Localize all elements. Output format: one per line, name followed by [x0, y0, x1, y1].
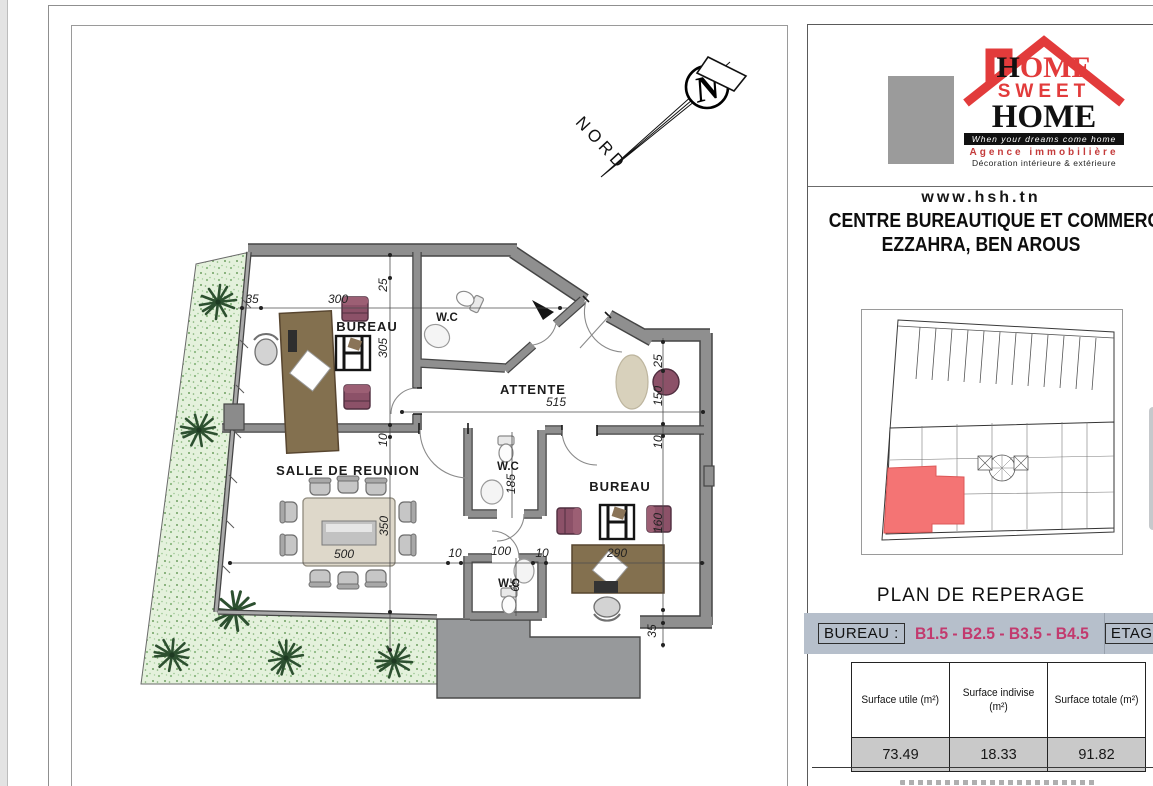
- svg-text:150: 150: [651, 386, 665, 406]
- svg-text:515: 515: [546, 395, 566, 409]
- waiting-area: [616, 355, 679, 409]
- info-panel: HHOMEOME SWEET HOME When your dreams com…: [807, 24, 1153, 786]
- room-label-bureau2: BUREAU: [589, 479, 651, 494]
- unit-bar-left: BUREAU : B1.5 - B2.5 - B3.5 - B4.5: [804, 623, 1104, 644]
- agency-logo: HHOMEOME SWEET HOME When your dreams com…: [958, 33, 1130, 168]
- svg-text:25: 25: [651, 354, 665, 369]
- surface-totale-header: Surface totale (m²): [1048, 663, 1146, 738]
- unit-numbers: B1.5 - B2.5 - B3.5 - B4.5: [915, 624, 1089, 644]
- svg-text:185: 185: [504, 474, 518, 494]
- svg-text:305: 305: [376, 338, 390, 358]
- bookshelf: [336, 336, 370, 370]
- compass-icon: N NORD: [572, 57, 746, 177]
- wc-fixtures: [420, 288, 534, 614]
- svg-text:500: 500: [334, 547, 354, 561]
- terrace: [437, 619, 640, 698]
- cut-off-text: [900, 780, 1098, 785]
- armchair: [344, 385, 370, 409]
- project-title-line1: CENTRE BUREAUTIQUE ET COMMERCIAL: [829, 209, 1133, 233]
- bureau-label: BUREAU :: [818, 623, 905, 644]
- svg-text:10: 10: [448, 546, 462, 560]
- svg-text:10: 10: [376, 433, 390, 447]
- brand-word-home2: HOME: [958, 102, 1130, 132]
- svg-text:350: 350: [377, 516, 391, 536]
- project-title: CENTRE BUREAUTIQUE ET COMMERCIAL EZZAHRA…: [808, 209, 1153, 257]
- surface-table-header-row: Surface utile (m²) Surface indivise (m²)…: [852, 663, 1146, 738]
- reperage-title: PLAN DE REPERAGE: [808, 585, 1153, 607]
- north-label: NORD: [572, 113, 631, 174]
- svg-text:290: 290: [606, 546, 627, 560]
- room-label-wc-mid: W.C: [497, 461, 519, 473]
- svg-text:160: 160: [651, 513, 665, 533]
- gray-fragment: [1149, 407, 1153, 530]
- svg-text:10: 10: [535, 546, 549, 560]
- surface-indivise-header: Surface indivise (m²): [950, 663, 1048, 738]
- brand-word-home1: HHOMEOME: [958, 55, 1130, 81]
- surface-utile-header: Surface utile (m²): [852, 663, 950, 738]
- project-title-line2: EZZAHRA, BEN AROUS: [829, 233, 1133, 257]
- svg-text:35: 35: [645, 624, 659, 638]
- room-label-wc-top: W.C: [436, 312, 458, 324]
- agency-logo-area: HHOMEOME SWEET HOME When your dreams com…: [808, 25, 1153, 187]
- unit-bar-right: ETAGE: [1104, 613, 1153, 654]
- floor-plan-sheet: 35 300 25 305 10 350 500 10 100 10 515 2…: [0, 0, 1153, 786]
- brand-tagline: When your dreams come home: [964, 133, 1124, 145]
- surface-table: Surface utile (m²) Surface indivise (m²)…: [851, 662, 1146, 772]
- agency-line2: Décoration intérieure & extérieure: [958, 158, 1130, 168]
- website-link[interactable]: www.hsh.tn: [808, 189, 1153, 207]
- svg-text:300: 300: [328, 292, 348, 306]
- bookshelf: [600, 505, 634, 539]
- agency-line1: Agence immobilière: [958, 147, 1130, 158]
- svg-text:35: 35: [245, 292, 259, 306]
- svg-text:100: 100: [491, 544, 511, 558]
- svg-text:25: 25: [376, 278, 390, 293]
- location-mini-plan: [861, 309, 1123, 555]
- mini-plan-drawing: [862, 310, 1120, 552]
- room-label-attente: ATTENTE: [500, 382, 566, 397]
- entrance-arrow-icon: [532, 300, 554, 320]
- etage-label: ETAGE: [1105, 623, 1153, 644]
- armchair: [557, 508, 581, 534]
- logo-photo-placeholder: [888, 76, 954, 164]
- room-label-wc-bottom: W.C: [498, 578, 520, 590]
- svg-text:10: 10: [651, 435, 665, 449]
- room-label-bureau1: BUREAU: [336, 319, 398, 334]
- unit-bar: BUREAU : B1.5 - B2.5 - B3.5 - B4.5 ETAGE: [804, 613, 1153, 654]
- panel-divider-line: [812, 767, 1153, 768]
- room-label-salle: SALLE DE REUNION: [276, 463, 420, 478]
